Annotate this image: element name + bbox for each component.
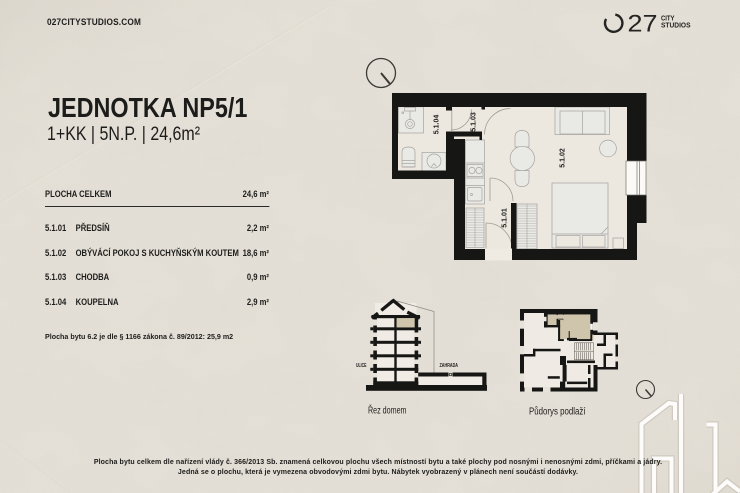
svg-text:Řez domem: Řez domem — [368, 404, 407, 417]
svg-text:5.1.03: 5.1.03 — [470, 112, 477, 132]
svg-text:5.1.02: 5.1.02 — [559, 148, 566, 168]
svg-text:5.1.04: 5.1.04 — [433, 115, 440, 135]
svg-text:ZAHRADA: ZAHRADA — [440, 363, 459, 369]
svg-text:5.1.01: 5.1.01 — [501, 208, 508, 228]
svg-text:ULICE: ULICE — [356, 363, 367, 369]
svg-text:Půdorys podlaží: Půdorys podlaží — [529, 406, 586, 418]
